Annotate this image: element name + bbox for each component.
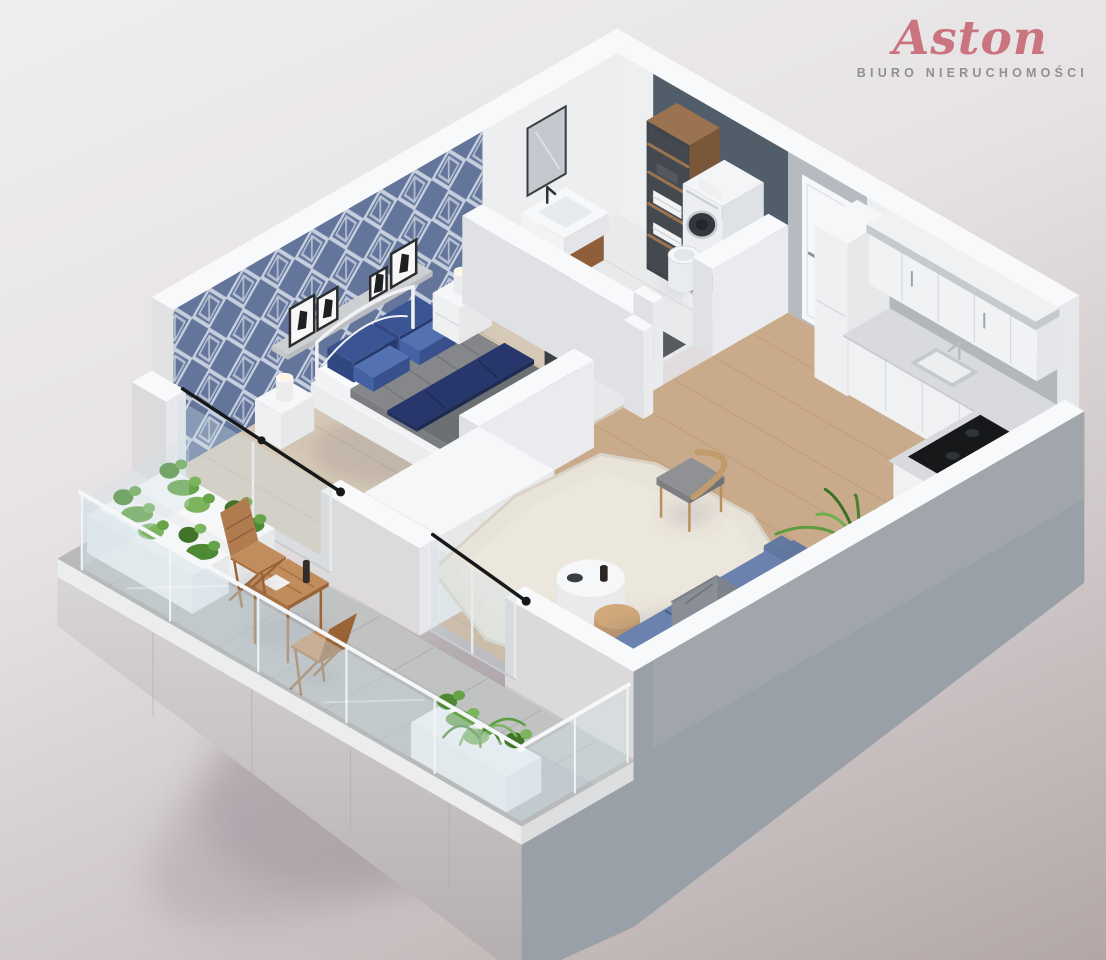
brand-logo: Aston BIURO NIERUCHOMOŚCI xyxy=(853,14,1088,80)
floor-plan-rendering xyxy=(0,0,1106,960)
brand-name: Aston xyxy=(853,14,1088,63)
brand-tagline: BIURO NIERUCHOMOŚCI xyxy=(853,66,1088,80)
floor-plan-stage: Aston BIURO NIERUCHOMOŚCI xyxy=(0,0,1106,960)
